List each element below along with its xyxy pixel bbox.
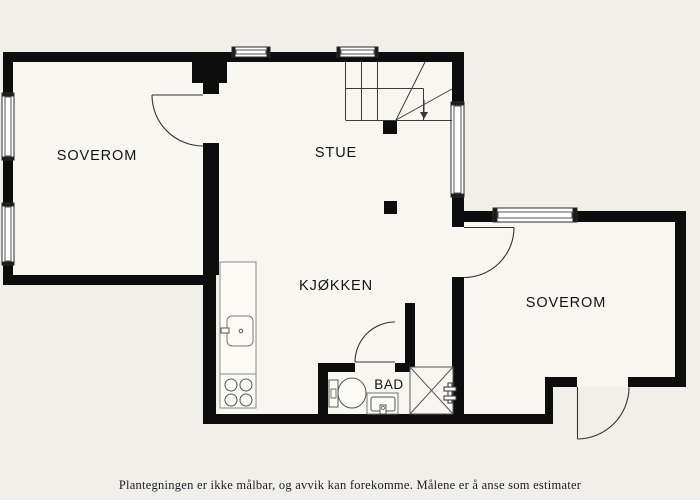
chimney-square <box>384 201 397 214</box>
wall-living-right-mid <box>452 197 464 227</box>
room-label-living-room: STUE <box>315 145 357 161</box>
wall-right <box>675 211 686 387</box>
stair-newel-post <box>383 120 397 134</box>
wall-bedroom-left-bottom <box>3 275 215 285</box>
room-label-bedroom-right: SOVEROM <box>526 295 606 311</box>
wall-living-right-lower <box>452 277 464 424</box>
window-living-right <box>451 102 464 197</box>
window-bedroom-left-top <box>232 47 270 57</box>
room-label-bathroom: BAD <box>374 377 404 392</box>
wall-divider-above-door <box>203 83 219 94</box>
bathroom-sink <box>367 393 398 414</box>
window-bedroom-left-wall-upper <box>2 93 14 160</box>
window-bedroom-right-top <box>493 208 577 222</box>
room-label-bedroom-left: SOVEROM <box>57 148 137 164</box>
wall-divider-bedroom-living <box>203 143 219 275</box>
disclaimer-caption: Plantegningen er ikke målbar, og avvik k… <box>119 478 582 492</box>
wall-step <box>545 377 553 424</box>
wall-plumbing <box>405 303 415 372</box>
wall-bath-top-left <box>318 363 355 372</box>
wall-living-right-upper <box>452 52 464 102</box>
floor-plan-page: SOVEROM STUE KJØKKEN SOVEROM BAD Planteg… <box>0 0 700 500</box>
wall-bottom <box>203 414 553 424</box>
wall-bedroom-right-bottom-a <box>553 377 577 387</box>
floor-plan-drawing: SOVEROM STUE KJØKKEN SOVEROM BAD Planteg… <box>0 0 700 500</box>
kitchen-faucet <box>221 328 229 333</box>
window-bedroom-left-wall-lower <box>2 203 14 265</box>
window-stairs-top <box>337 47 378 57</box>
floor-bedroom-left <box>13 62 203 275</box>
wall-chimney-chunk <box>192 52 227 83</box>
wall-kitchen-left <box>203 275 216 424</box>
toilet <box>329 378 366 408</box>
room-label-kitchen: KJØKKEN <box>299 278 373 294</box>
kitchen-fixtures <box>220 262 256 408</box>
